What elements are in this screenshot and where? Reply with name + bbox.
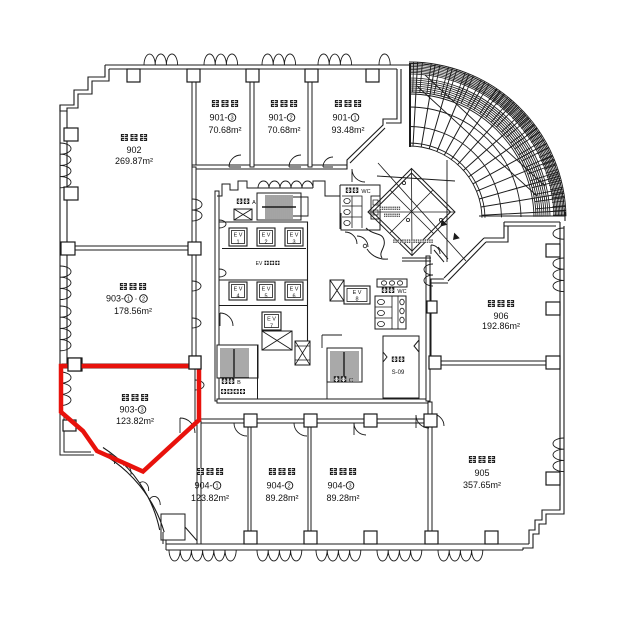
svg-text:2: 2 <box>289 116 292 122</box>
svg-text:·: · <box>135 294 138 304</box>
svg-text:7: 7 <box>270 324 273 330</box>
svg-text:S-09: S-09 <box>392 370 405 376</box>
svg-text:E V: E V <box>290 287 299 293</box>
svg-text:E V: E V <box>234 233 243 239</box>
svg-text:E V: E V <box>290 233 299 239</box>
svg-text:A: A <box>252 200 256 206</box>
svg-text:901-: 901- <box>209 113 227 123</box>
svg-text:B: B <box>237 380 241 386</box>
svg-text:903-: 903- <box>119 405 137 415</box>
svg-text:123.82m²: 123.82m² <box>116 416 154 426</box>
svg-text:2: 2 <box>264 240 267 246</box>
svg-text:WC: WC <box>397 289 406 295</box>
svg-text:E V: E V <box>234 287 243 293</box>
svg-text:EV: EV <box>256 261 263 267</box>
svg-text:3: 3 <box>348 484 351 490</box>
svg-text:904-: 904- <box>266 481 284 491</box>
svg-text:E V: E V <box>353 290 362 296</box>
svg-text:2: 2 <box>142 297 145 303</box>
svg-text:4: 4 <box>236 294 239 300</box>
svg-text:8: 8 <box>355 297 358 303</box>
svg-text:178.56m²: 178.56m² <box>114 306 152 316</box>
svg-text:1: 1 <box>215 484 218 490</box>
svg-text:89.28m²: 89.28m² <box>326 493 359 503</box>
svg-text:3: 3 <box>140 408 143 414</box>
svg-text:3: 3 <box>230 116 233 122</box>
svg-text:89.28m²: 89.28m² <box>265 493 298 503</box>
svg-text:2: 2 <box>287 484 290 490</box>
svg-text:904-: 904- <box>327 481 345 491</box>
svg-text:357.65m²: 357.65m² <box>463 480 501 490</box>
svg-text:E V: E V <box>267 317 276 323</box>
svg-text:1: 1 <box>127 297 130 303</box>
svg-text:5: 5 <box>264 294 267 300</box>
svg-text:901-: 901- <box>332 113 350 123</box>
svg-text:93.48m²: 93.48m² <box>331 125 364 135</box>
svg-text:3: 3 <box>292 240 295 246</box>
svg-text:269.87m²: 269.87m² <box>115 156 153 166</box>
svg-text:123.82m²: 123.82m² <box>191 493 229 503</box>
svg-text:192.86m²: 192.86m² <box>482 321 520 331</box>
svg-text:905: 905 <box>474 468 489 478</box>
svg-text:6: 6 <box>292 294 295 300</box>
svg-text:WC: WC <box>361 189 370 195</box>
svg-text:902: 902 <box>126 145 141 155</box>
svg-text:C: C <box>349 378 353 384</box>
svg-text:1: 1 <box>236 240 239 246</box>
svg-text:70.68m²: 70.68m² <box>208 125 241 135</box>
svg-text:901-: 901- <box>268 113 286 123</box>
svg-text:E V: E V <box>262 233 271 239</box>
svg-text:904-: 904- <box>194 481 212 491</box>
svg-text:903-: 903- <box>106 294 124 304</box>
svg-text:906: 906 <box>493 311 508 321</box>
svg-text:E V: E V <box>262 287 271 293</box>
svg-text:70.68m²: 70.68m² <box>267 125 300 135</box>
svg-text:1: 1 <box>353 116 356 122</box>
